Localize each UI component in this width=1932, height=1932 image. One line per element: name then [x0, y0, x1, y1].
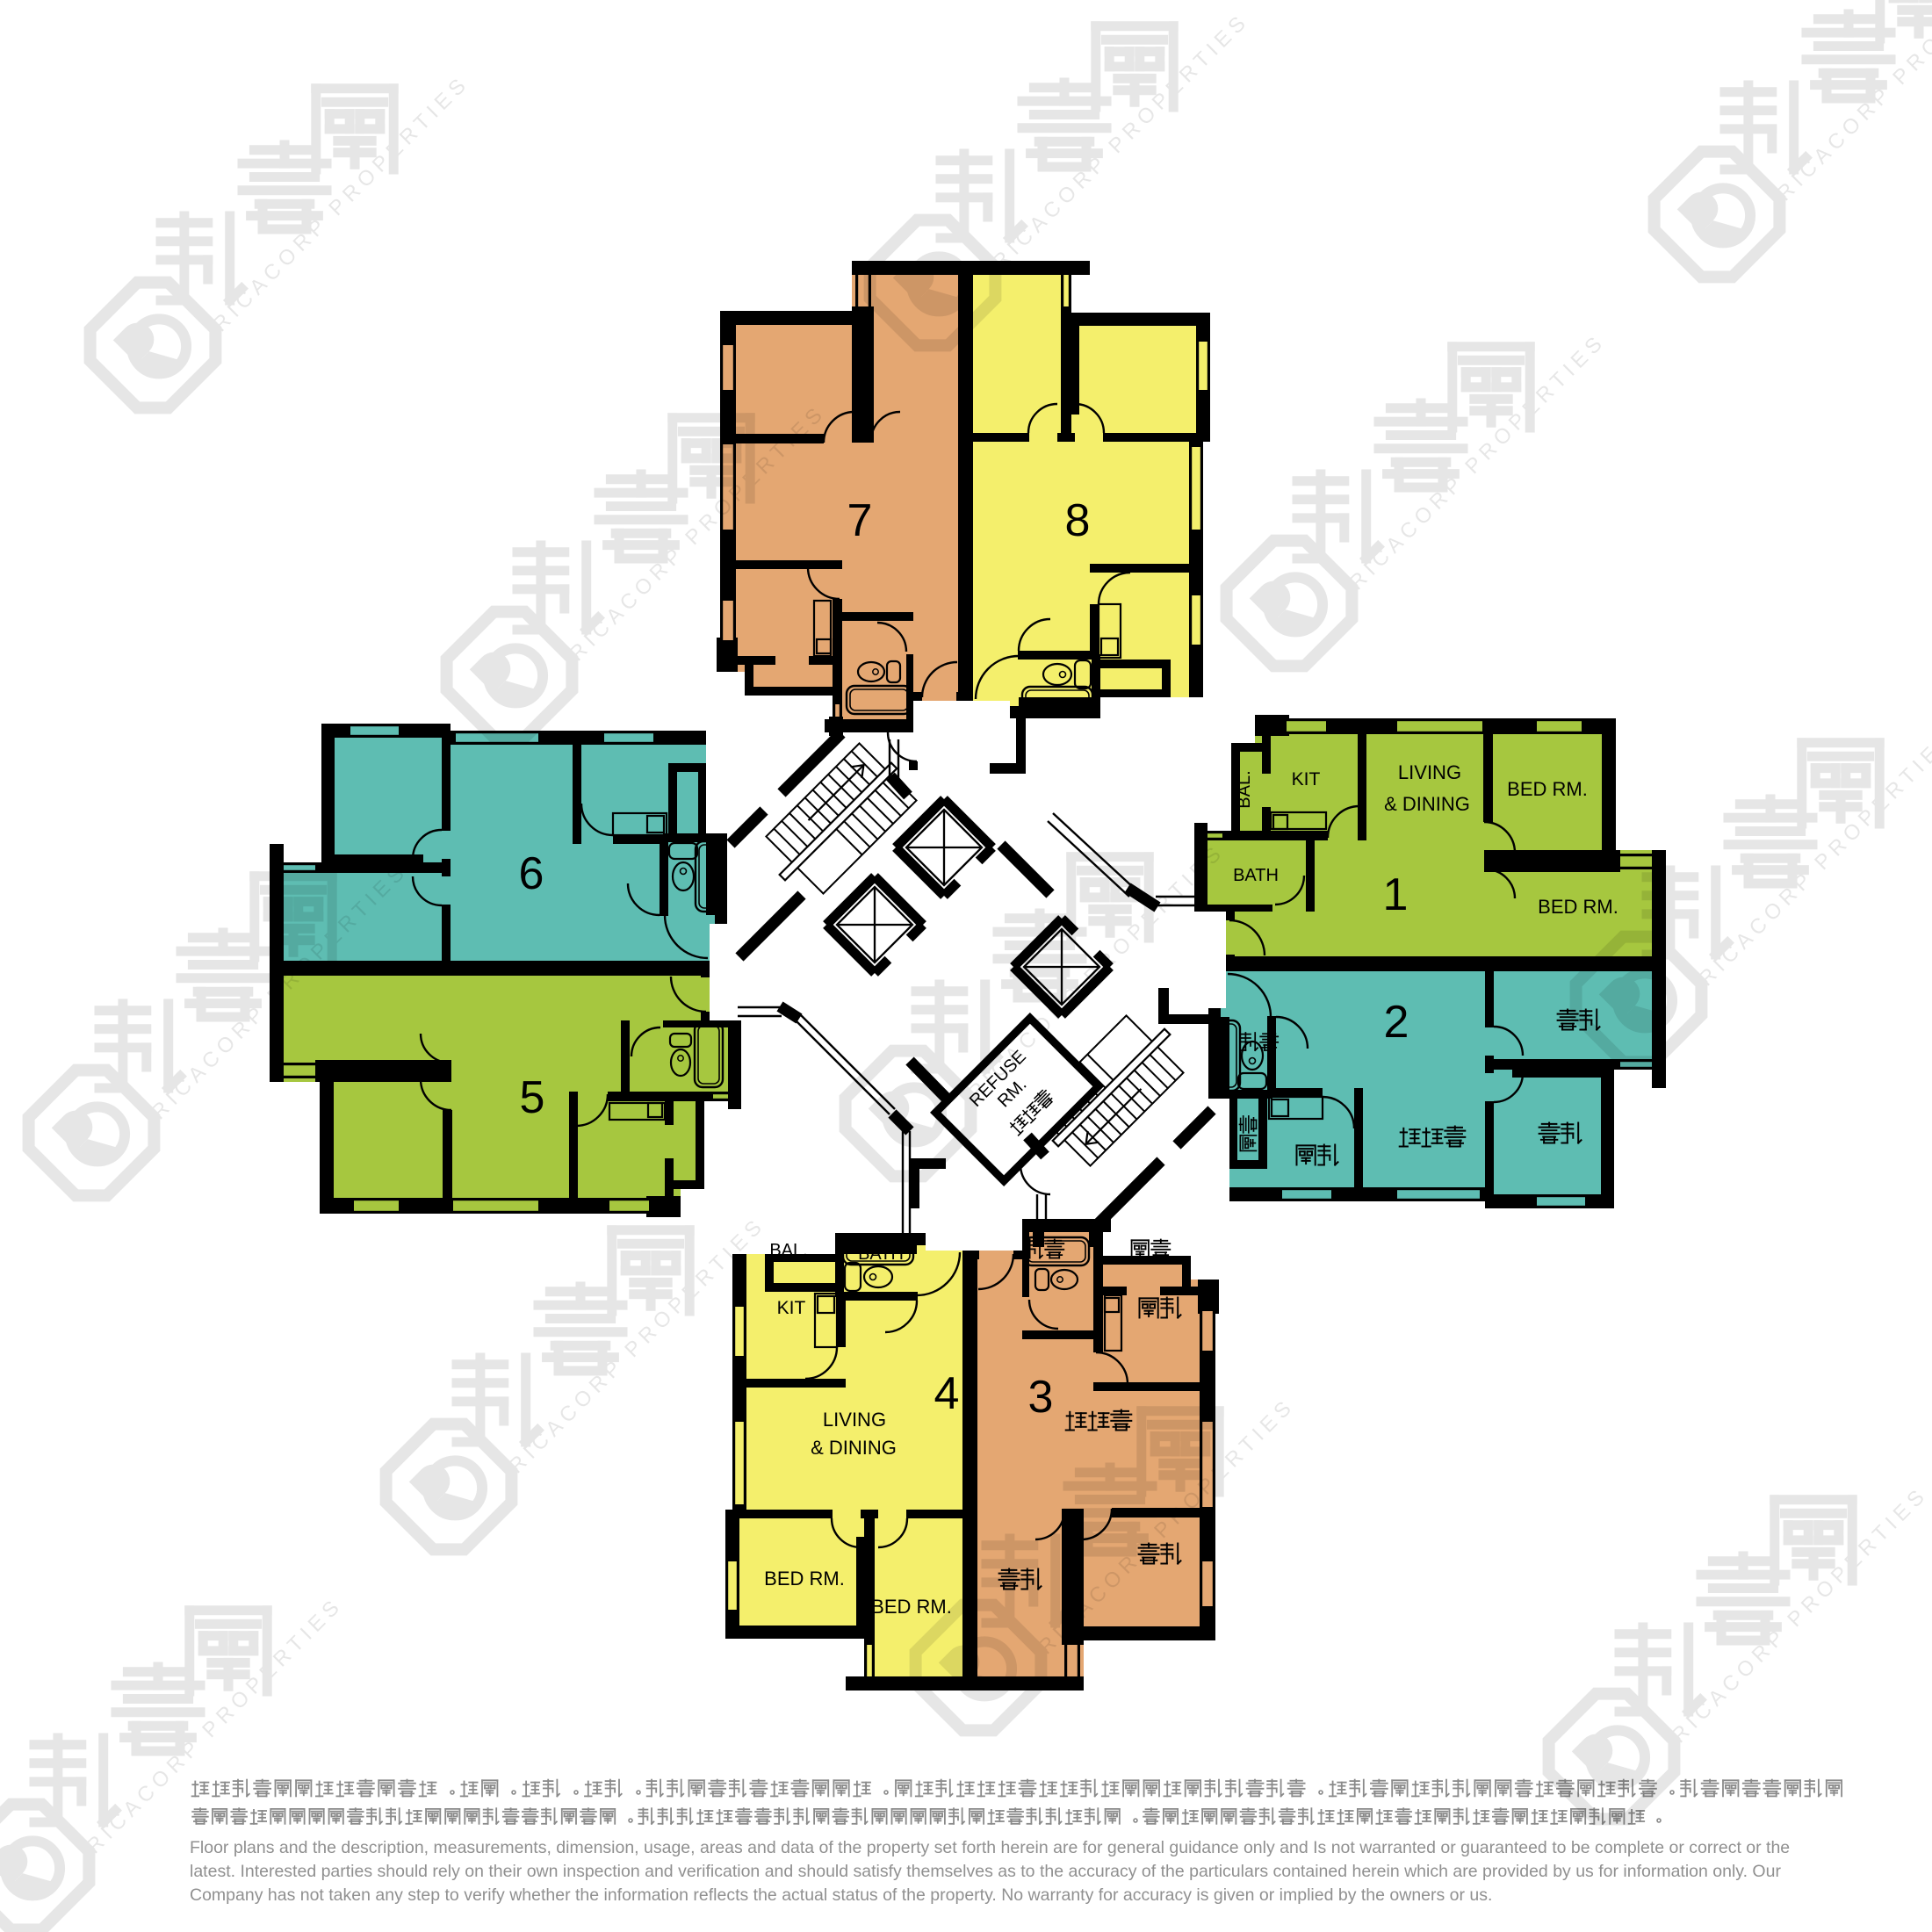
svg-text:KIT: KIT [1292, 769, 1321, 789]
svg-text:8: 8 [1065, 495, 1091, 546]
svg-text:BED RM.: BED RM. [1507, 778, 1588, 800]
svg-text:BATH: BATH [1233, 866, 1279, 885]
svg-text:7: 7 [847, 495, 873, 546]
svg-text:latest. Interested parties sho: latest. Interested parties should rely o… [190, 1862, 1781, 1881]
svg-text:1: 1 [1383, 869, 1409, 920]
svg-text:& DINING: & DINING [1384, 793, 1470, 815]
svg-text:4: 4 [934, 1368, 960, 1419]
svg-text:BAL.: BAL. [1235, 770, 1254, 808]
svg-text:BED RM.: BED RM. [764, 1568, 845, 1590]
svg-text:& DINING: & DINING [811, 1437, 897, 1459]
svg-text:BED RM.: BED RM. [871, 1596, 952, 1618]
svg-text:Company has not taken any step: Company has not taken any step to verify… [190, 1885, 1492, 1905]
svg-text:LIVING: LIVING [823, 1409, 886, 1431]
svg-text:3: 3 [1028, 1372, 1054, 1423]
svg-text:2: 2 [1384, 997, 1409, 1048]
svg-text:BED RM.: BED RM. [1538, 896, 1618, 918]
svg-text:BATH: BATH [858, 1244, 904, 1264]
svg-text:5: 5 [520, 1072, 545, 1123]
svg-text:Floor plans and the descriptio: Floor plans and the description, measure… [190, 1838, 1790, 1857]
svg-text:BAL.: BAL. [769, 1241, 807, 1260]
svg-text:6: 6 [519, 848, 544, 899]
svg-text:LIVING: LIVING [1398, 761, 1461, 783]
svg-text:KIT: KIT [777, 1298, 806, 1318]
